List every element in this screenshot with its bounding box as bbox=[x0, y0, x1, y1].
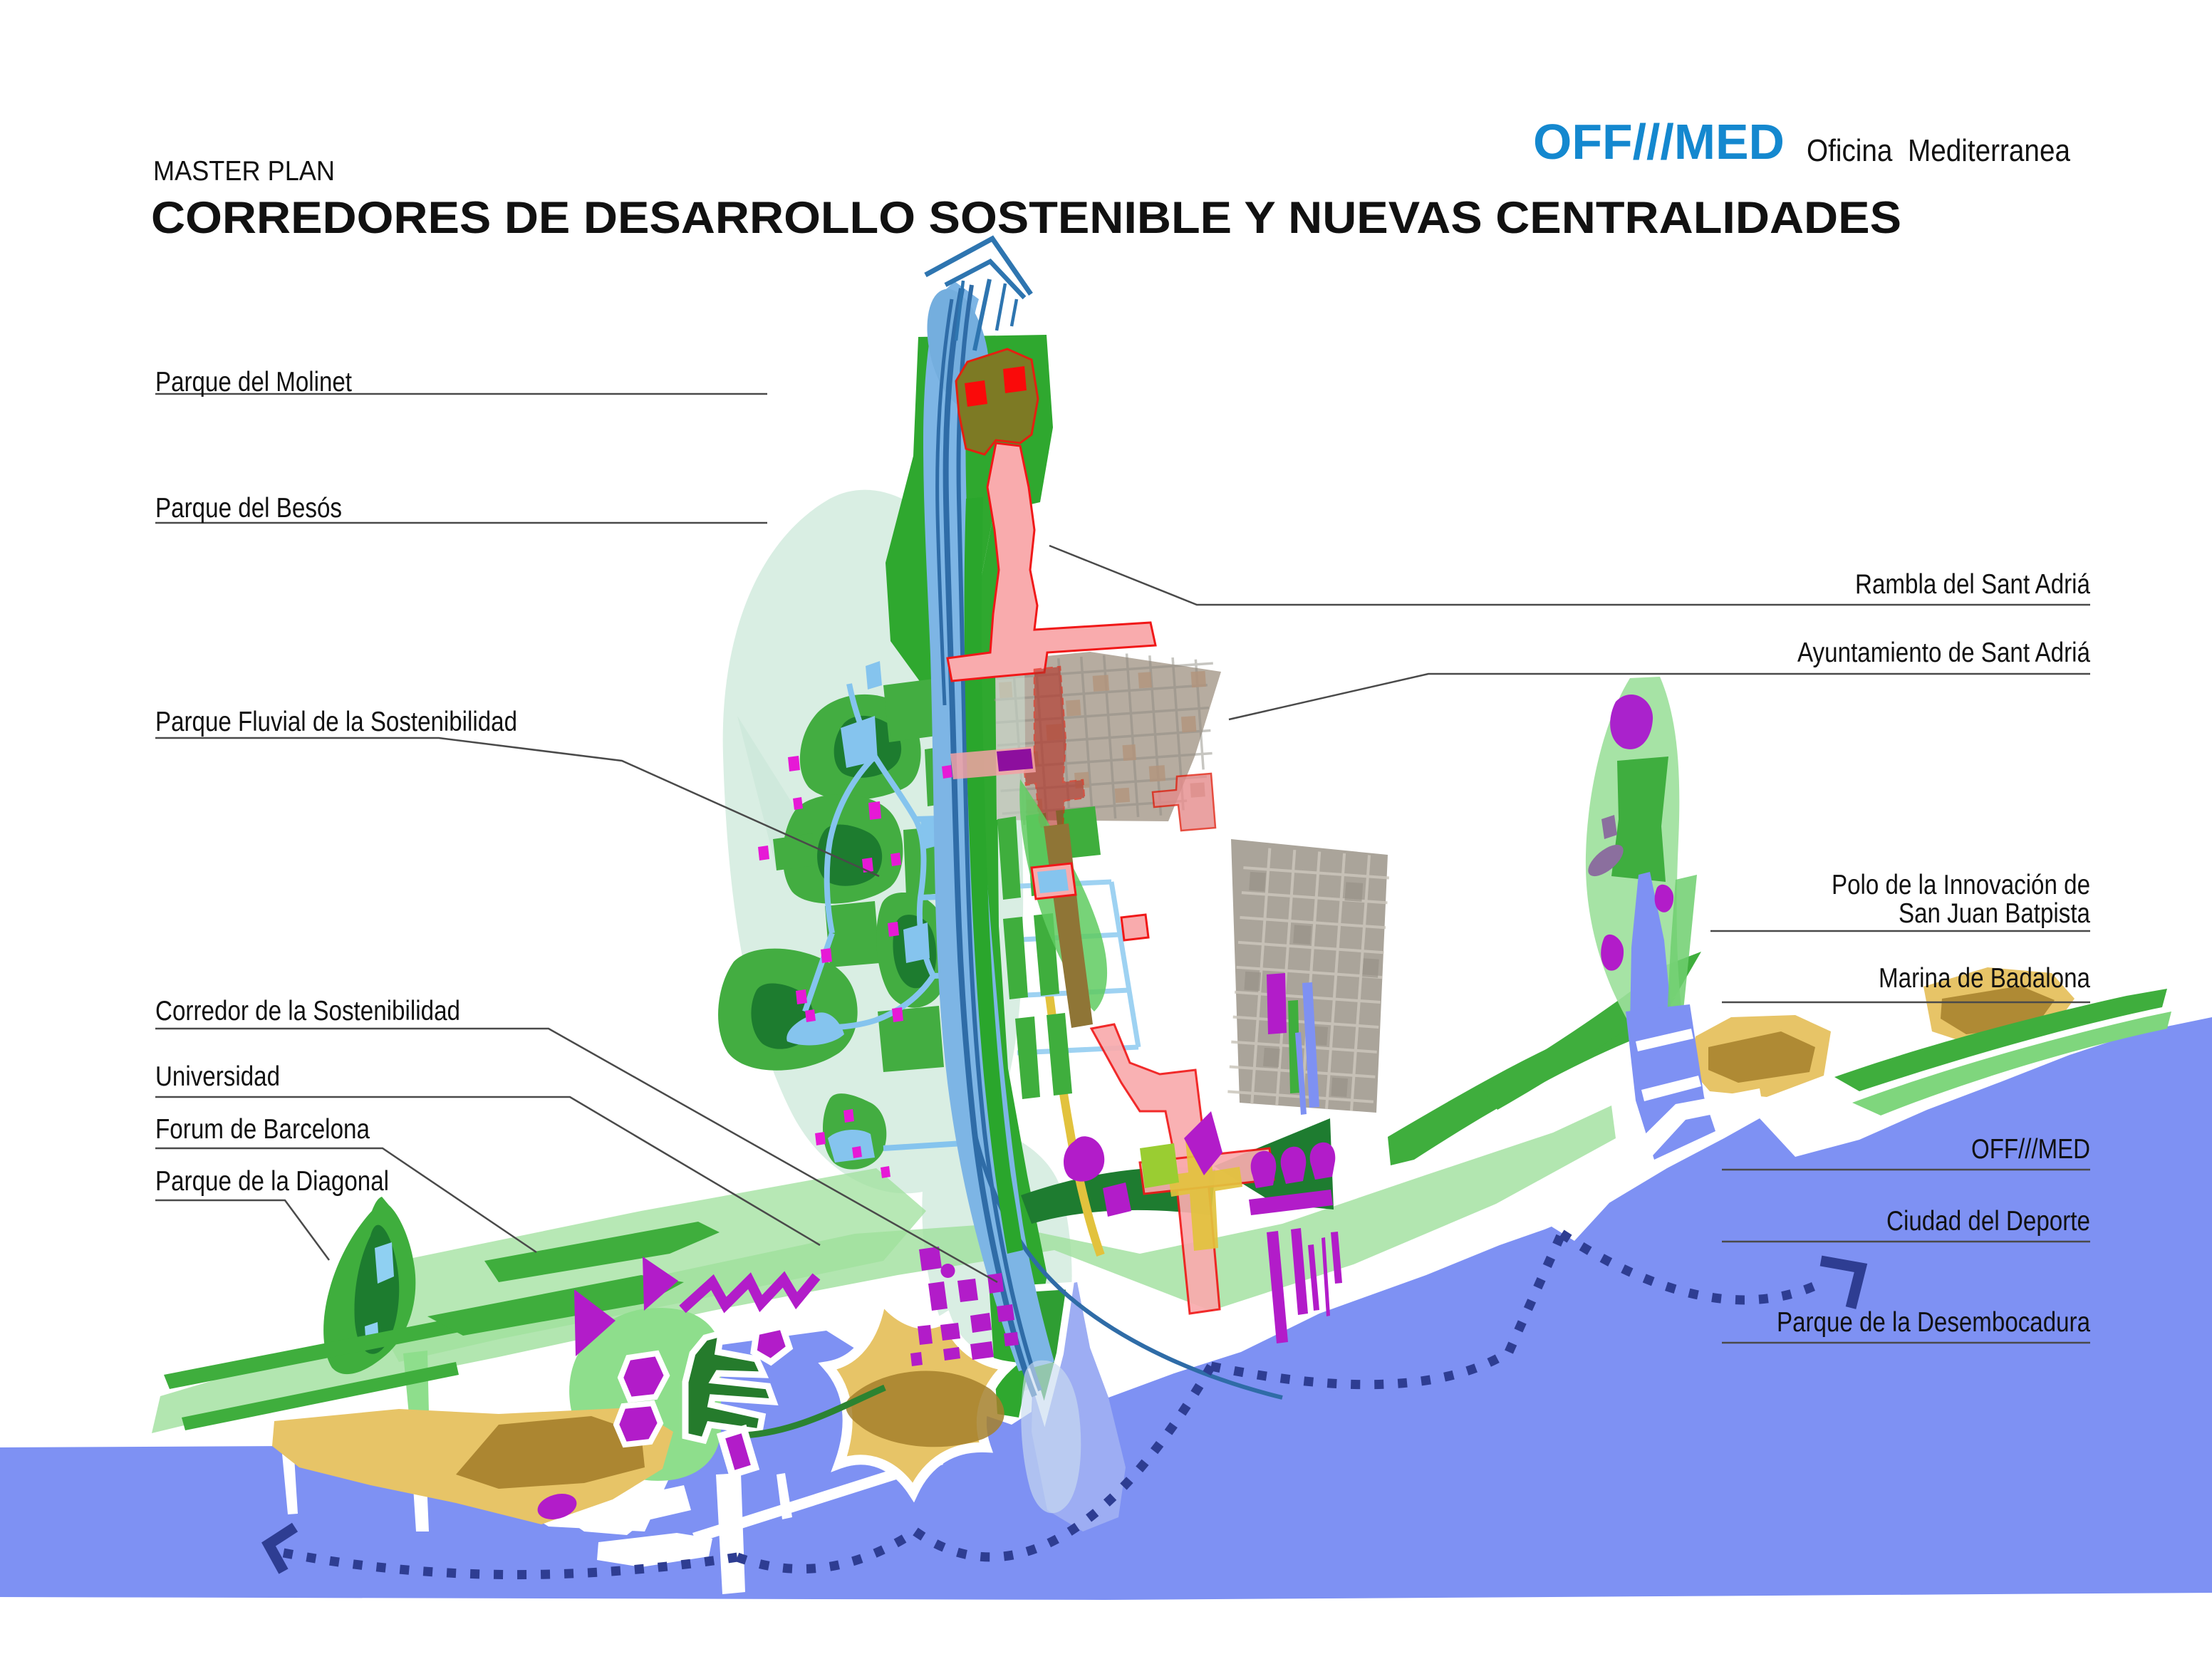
svg-text:OFF///MED: OFF///MED bbox=[1533, 114, 1785, 170]
svg-text:Ciudad del Deporte: Ciudad del Deporte bbox=[1886, 1206, 2090, 1237]
svg-text:MASTER PLAN: MASTER PLAN bbox=[153, 156, 335, 187]
svg-text:Corredor de la Sostenibilidad: Corredor de la Sostenibilidad bbox=[155, 996, 460, 1026]
svg-text:CORREDORES DE DESARROLLO SOSTE: CORREDORES DE DESARROLLO SOSTENIBLE Y NU… bbox=[151, 193, 1901, 243]
svg-text:Polo de la Innovación de: Polo de la Innovación de bbox=[1832, 870, 2090, 900]
svg-text:OFF///MED: OFF///MED bbox=[1971, 1134, 2090, 1165]
svg-text:Marina de Badalona: Marina de Badalona bbox=[1879, 963, 2090, 994]
svg-text:San Juan Batpista: San Juan Batpista bbox=[1899, 898, 2090, 929]
svg-text:Rambla del Sant Adriá: Rambla del Sant Adriá bbox=[1855, 569, 2090, 600]
svg-text:Oficina Mediterranea: Oficina Mediterranea bbox=[1807, 133, 2070, 168]
svg-text:Parque del Besós: Parque del Besós bbox=[155, 493, 342, 524]
svg-text:Forum de Barcelona: Forum de Barcelona bbox=[155, 1114, 370, 1145]
svg-text:Universidad: Universidad bbox=[155, 1061, 280, 1092]
svg-text:Parque Fluvial de la Sostenibi: Parque Fluvial de la Sostenibilidad bbox=[155, 707, 517, 737]
svg-text:Parque de la Diagonal: Parque de la Diagonal bbox=[155, 1166, 389, 1197]
svg-text:Parque del Molinet: Parque del Molinet bbox=[155, 367, 352, 397]
svg-text:Parque de la Desembocadura: Parque de la Desembocadura bbox=[1777, 1307, 2090, 1338]
svg-text:Ayuntamiento de Sant Adriá: Ayuntamiento de Sant Adriá bbox=[1797, 638, 2090, 668]
